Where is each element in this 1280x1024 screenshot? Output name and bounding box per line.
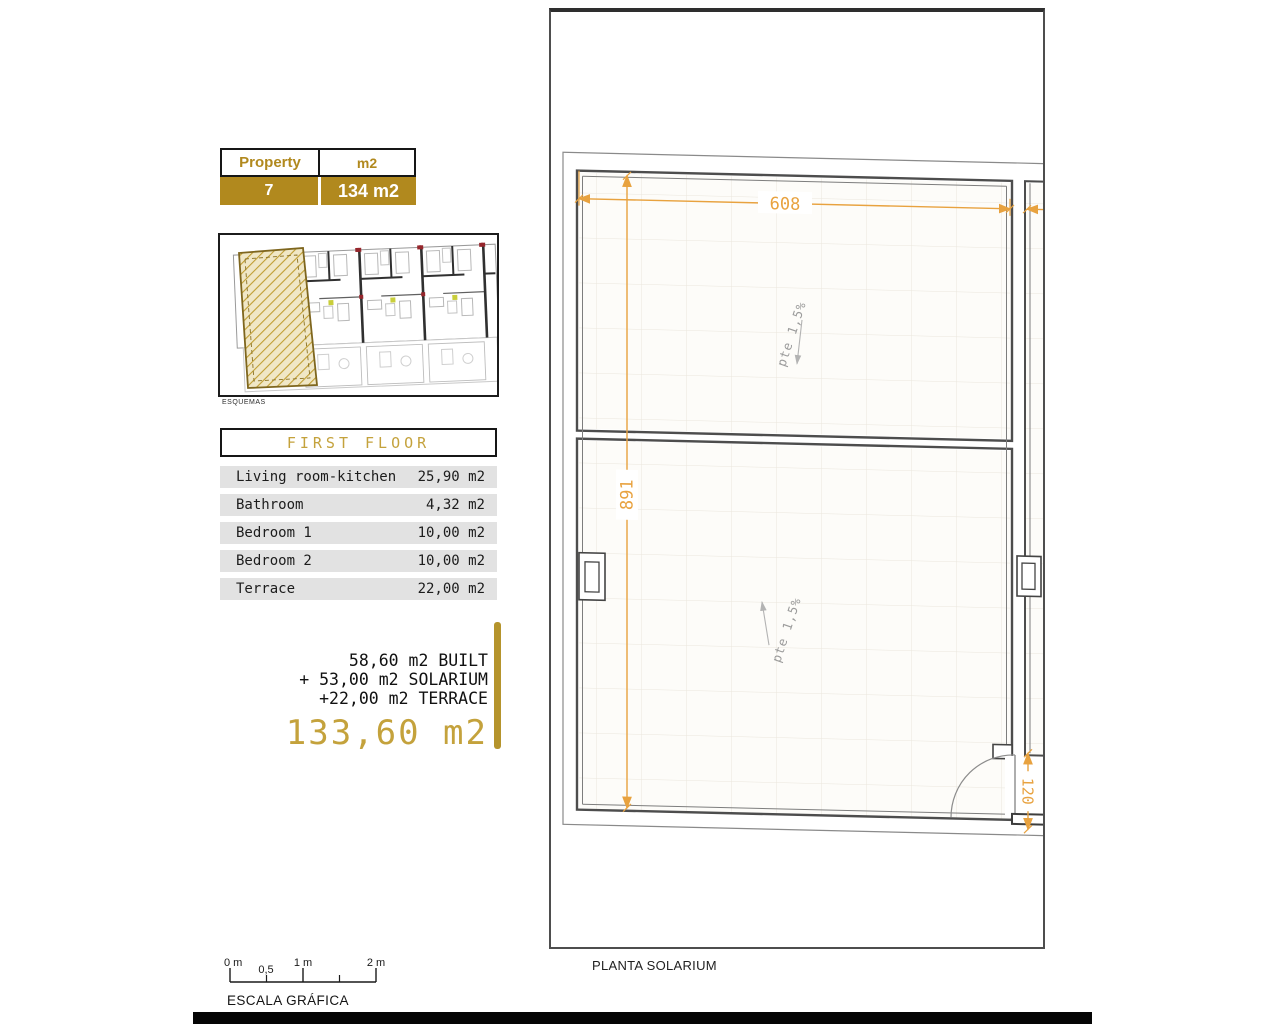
- site-plan-drawing: [220, 235, 497, 395]
- room-row: Bedroom 2 10,00 m2: [220, 550, 497, 572]
- m2-header-cell: m2: [320, 150, 414, 175]
- first-floor-title: FIRST FLOOR: [220, 428, 497, 457]
- total-area: 133,60 m2: [286, 715, 488, 751]
- property-number: 7: [220, 177, 318, 205]
- highlighted-unit: [239, 248, 317, 388]
- scale-1m-label: 1 m: [294, 957, 312, 969]
- property-header-cell: Property: [222, 150, 320, 175]
- solarium-area-line: + 53,00 m2 SOLARIUM: [286, 670, 488, 689]
- room-row: Bathroom 4,32 m2: [220, 494, 497, 516]
- door-dimension-label: 120: [1019, 777, 1037, 805]
- property-table-header: Property m2: [220, 148, 416, 177]
- area-summary: 58,60 m2 BUILT + 53,00 m2 SOLARIUM +22,0…: [286, 651, 488, 751]
- room-area: 10,00 m2: [418, 525, 485, 541]
- scale-2m-label: 2 m: [367, 957, 385, 969]
- room-row: Terrace 22,00 m2: [220, 578, 497, 600]
- scale-05-label: 0,5: [258, 964, 273, 976]
- lower-terrace-tiles: [579, 441, 1010, 819]
- built-area-line: 58,60 m2 BUILT: [286, 651, 488, 670]
- room-label: Bedroom 1: [236, 525, 312, 541]
- width-dimension-label: 608: [770, 194, 801, 215]
- left-wall-box: [579, 553, 605, 601]
- height-dimension-label: 891: [618, 479, 638, 510]
- room-label: Bathroom: [236, 497, 303, 513]
- scale-0m-label: 0 m: [224, 957, 242, 969]
- room-label: Living room-kitchen: [236, 469, 396, 485]
- terrace-area-line: +22,00 m2 TERRACE: [286, 689, 488, 708]
- room-area: 22,00 m2: [418, 581, 485, 597]
- solarium-plan-drawing: 608 891 120: [551, 12, 1043, 947]
- graphic-scale: 0 m 0,5 1 m 2 m: [222, 956, 392, 990]
- floor-plan-sheet: Property m2 7 134 m2: [0, 0, 1280, 1024]
- esquemas-caption: ESQUEMAS: [222, 399, 266, 406]
- scale-caption: ESCALA GRÁFICA: [227, 993, 349, 1008]
- property-table: Property m2 7 134 m2: [220, 148, 416, 205]
- room-label: Bedroom 2: [236, 553, 312, 569]
- room-row: Living room-kitchen 25,90 m2: [220, 466, 497, 488]
- room-row: Bedroom 1 10,00 m2: [220, 522, 497, 544]
- accent-bar: [494, 622, 501, 749]
- site-plan-thumbnail: [218, 233, 499, 397]
- room-area: 4,32 m2: [426, 497, 485, 513]
- bottom-bar: [193, 1012, 1092, 1024]
- property-size: 134 m2: [321, 177, 416, 205]
- property-table-values: 7 134 m2: [220, 177, 416, 205]
- plan-caption: PLANTA SOLARIUM: [592, 958, 717, 973]
- room-area: 25,90 m2: [418, 469, 485, 485]
- side-strip-tiles: [1026, 183, 1043, 757]
- plan-frame: 608 891 120: [549, 8, 1045, 949]
- room-label: Terrace: [236, 581, 295, 597]
- right-wall-box: [1017, 556, 1041, 597]
- room-area: 10,00 m2: [418, 553, 485, 569]
